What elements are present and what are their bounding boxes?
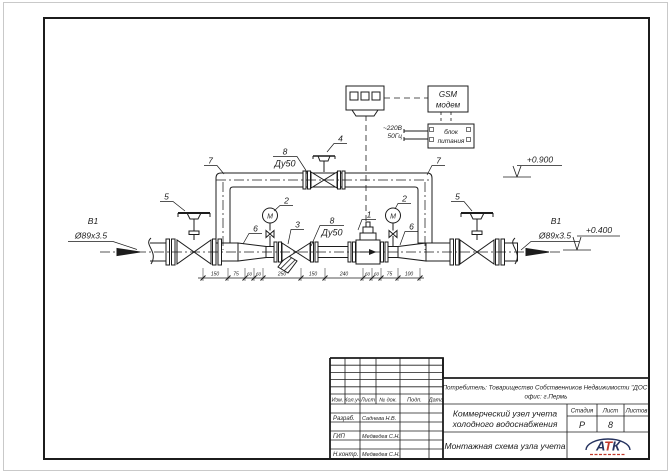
dim-value: 60	[256, 272, 262, 277]
item-label-gauge-right: 2	[401, 194, 407, 204]
item-label-reducer-left: 6	[253, 224, 258, 234]
dim-value: 150	[309, 272, 318, 278]
col-kol: Кол.уч	[344, 398, 361, 404]
item-label-valve-left: 5	[164, 192, 169, 202]
project-title-line1: Коммерческий узел учета	[453, 409, 558, 419]
pipe-top-item-number: 8	[283, 147, 288, 157]
sheet-value: 8	[608, 420, 613, 430]
gauge-letter-left: М	[267, 213, 273, 220]
pipe-mid-item-number: 8	[330, 216, 335, 226]
item-label-reducer-right: 6	[409, 222, 414, 232]
line-size-left: Ø89x3.5	[74, 231, 107, 241]
sig-role-1: ГИП	[333, 434, 346, 440]
psu-label-line1: блок	[444, 128, 459, 136]
power-voltage-label: ~220В	[383, 125, 403, 132]
pipe-mid-dn: Ду50	[321, 228, 343, 238]
sig-name-2: Медведев С.Н.	[362, 452, 400, 458]
elevation-main: +0.400	[586, 225, 613, 235]
sheet-header: Лист	[602, 409, 618, 415]
gauge-letter-right: М	[390, 213, 396, 220]
customer-line2: офис: г.Пермь	[525, 394, 568, 401]
dim-value: 75	[233, 272, 239, 278]
item-label-meter: 1	[367, 210, 372, 220]
sig-role-0: Разраб.	[333, 416, 355, 422]
power-freq-label: 50Гц	[388, 133, 403, 140]
sig-name-1: Медведев С.Н.	[362, 434, 400, 440]
col-podp: Подп.	[407, 398, 422, 404]
sig-name-0: Саднева Н.В.	[362, 416, 396, 422]
item-label-gauge-left: 2	[283, 196, 289, 206]
dim-value: 250	[277, 272, 287, 278]
dim-value: 240	[339, 272, 349, 278]
line-tag-right: В1	[551, 216, 562, 226]
sheet-title: Монтажная схема узла учета	[444, 441, 565, 451]
dim-value: 75	[387, 272, 393, 278]
elevation-bypass: +0.900	[527, 155, 554, 165]
item-label-valve-right: 5	[455, 192, 460, 202]
customer-line1: Потребитель: Товарищество Собственников …	[442, 384, 650, 392]
drawing-sheet: М М 1 2 2 3 4 5 5 6 6 7 7 8 Ду50 8 Ду50 …	[0, 0, 671, 474]
dim-value: 150	[211, 272, 220, 278]
psu-label-line2: питания	[438, 138, 465, 145]
stage-header: Стадия	[571, 409, 594, 415]
item-label-filter: 3	[295, 220, 300, 230]
line-tag-left: В1	[88, 216, 99, 226]
gsm-label-line2: модем	[436, 101, 461, 110]
line-size-right: Ø89x3.5	[538, 231, 571, 241]
col-data: Дата	[428, 398, 444, 404]
stage-value: Р	[579, 420, 585, 430]
pipe-top-dn: Ду50	[274, 159, 296, 169]
dim-value: 60	[365, 272, 371, 277]
col-izm: Изм.	[332, 398, 344, 404]
logo-text: АТК	[595, 439, 621, 454]
gsm-label-line1: GSM	[439, 90, 458, 99]
item-label-elbow-left: 7	[208, 156, 213, 166]
drawing-canvas: М М 1 2 2 3 4 5 5 6 6 7 7 8 Ду50 8 Ду50 …	[0, 0, 671, 474]
sheets-header: Листов	[625, 409, 648, 415]
sig-role-2: Н.контр.	[333, 452, 358, 458]
item-label-elbow-right: 7	[436, 156, 441, 166]
project-title-line2: холодного водоснабжения	[452, 419, 558, 429]
col-doc: № док.	[379, 398, 397, 404]
col-list: Лист	[360, 398, 376, 404]
item-label-bypass-valve: 4	[338, 134, 343, 144]
dim-value: 100	[405, 272, 414, 278]
dim-value: 60	[247, 272, 253, 277]
dim-value: 60	[374, 272, 380, 277]
